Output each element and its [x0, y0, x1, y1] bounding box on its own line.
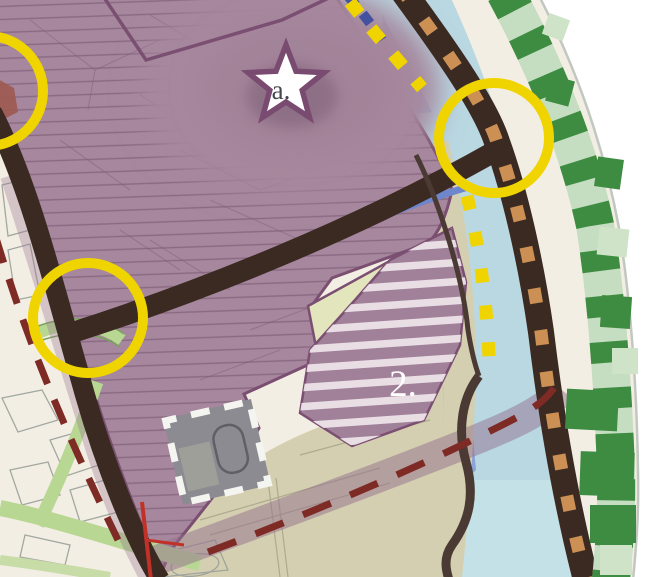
star-label: a.	[272, 75, 291, 105]
masterplan-canvas: a. 2.	[0, 0, 663, 577]
zone-2-label: 2.	[389, 364, 417, 405]
masterplan-map: a. 2.	[0, 0, 663, 577]
